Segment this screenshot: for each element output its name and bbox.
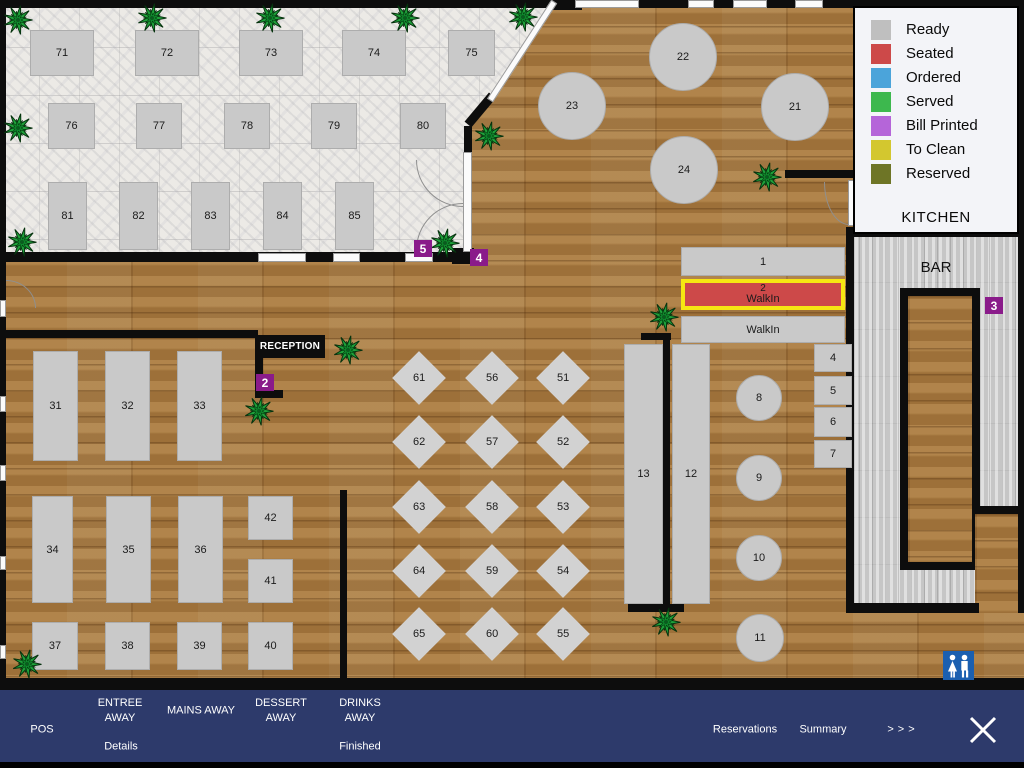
legend-swatch [871, 140, 891, 160]
table-82[interactable]: 82 [119, 182, 158, 250]
table-21[interactable]: 21 [761, 73, 829, 141]
table-53[interactable]: 53 [536, 480, 590, 534]
plant-icon [752, 162, 782, 192]
table-39[interactable]: 39 [177, 622, 222, 670]
table-79[interactable]: 79 [311, 103, 357, 149]
table-57[interactable]: 57 [465, 415, 519, 469]
table-6[interactable]: 6 [814, 407, 852, 437]
legend-item: Seated [871, 42, 1017, 65]
pos-floorplan-screen: BAR RECEPTION 71727374757677787980818283… [0, 0, 1024, 768]
table-52[interactable]: 52 [536, 415, 590, 469]
close-icon [966, 713, 1000, 747]
table-24[interactable]: 24 [650, 136, 718, 204]
table-41[interactable]: 41 [248, 559, 293, 603]
plant-icon [390, 3, 420, 33]
mains-away-button[interactable]: MAINS AWAY [167, 704, 235, 719]
table-71[interactable]: 71 [30, 30, 94, 76]
table-78[interactable]: 78 [224, 103, 270, 149]
table-62[interactable]: 62 [392, 415, 446, 469]
legend-label: Ordered [906, 69, 961, 86]
legend-swatch [871, 164, 891, 184]
plant-icon [474, 121, 504, 151]
legend-label: Seated [906, 45, 954, 62]
table-42[interactable]: 42 [248, 496, 293, 540]
plant-icon [651, 607, 681, 637]
table-13[interactable]: 13 [624, 344, 663, 604]
table-32[interactable]: 32 [105, 351, 150, 461]
table-33[interactable]: 33 [177, 351, 222, 461]
door-marker-5: 5 [414, 240, 432, 257]
table-76[interactable]: 76 [48, 103, 95, 149]
table-72[interactable]: 72 [135, 30, 199, 76]
table-31[interactable]: 31 [33, 351, 78, 461]
table-40[interactable]: 40 [248, 622, 293, 670]
table-74[interactable]: 74 [342, 30, 406, 76]
table-83[interactable]: 83 [191, 182, 230, 250]
table-1[interactable]: 1 [681, 247, 845, 276]
table-5[interactable]: 5 [814, 376, 852, 405]
legend-item: Reserved [871, 162, 1017, 185]
finished-button[interactable]: Finished [339, 740, 381, 755]
plant-icon [3, 113, 33, 143]
table-73[interactable]: 73 [239, 30, 303, 76]
legend-item: Ready [871, 18, 1017, 41]
plant-icon [508, 2, 538, 32]
table-38[interactable]: 38 [105, 622, 150, 670]
door-marker-4: 4 [470, 249, 488, 266]
table-60[interactable]: 60 [465, 607, 519, 661]
table-walkin[interactable]: WalkIn [681, 316, 845, 343]
table-7[interactable]: 7 [814, 440, 852, 468]
close-button[interactable] [966, 713, 1000, 747]
plant-icon [255, 3, 285, 33]
table-59[interactable]: 59 [465, 544, 519, 598]
legend-swatch [871, 68, 891, 88]
kitchen-label: KITCHEN [855, 209, 1017, 226]
table-85[interactable]: 85 [335, 182, 374, 250]
legend-label: Served [906, 93, 954, 110]
legend-swatch [871, 116, 891, 136]
table-81[interactable]: 81 [48, 182, 87, 250]
table-54[interactable]: 54 [536, 544, 590, 598]
door-marker-2: 2 [256, 374, 274, 391]
legend-item: Ordered [871, 66, 1017, 89]
legend-label: Bill Printed [906, 117, 978, 134]
table-4[interactable]: 4 [814, 344, 852, 372]
table-80[interactable]: 80 [400, 103, 446, 149]
legend-label: Reserved [906, 165, 970, 182]
table-77[interactable]: 77 [136, 103, 182, 149]
table-23[interactable]: 23 [538, 72, 606, 140]
legend-label: Ready [906, 21, 949, 38]
pos-button[interactable]: POS [30, 723, 53, 738]
legend-swatch [871, 44, 891, 64]
table-51[interactable]: 51 [536, 351, 590, 405]
plant-icon [3, 5, 33, 35]
table-58[interactable]: 58 [465, 480, 519, 534]
table-56[interactable]: 56 [465, 351, 519, 405]
table-22[interactable]: 22 [649, 23, 717, 91]
legend-label: To Clean [906, 141, 965, 158]
table-9[interactable]: 9 [736, 455, 782, 501]
table-55[interactable]: 55 [536, 607, 590, 661]
table-84[interactable]: 84 [263, 182, 302, 250]
table-35[interactable]: 35 [106, 496, 151, 603]
table-75[interactable]: 75 [448, 30, 495, 76]
plant-icon [137, 3, 167, 33]
legend-swatch [871, 20, 891, 40]
table-63[interactable]: 63 [392, 480, 446, 534]
drinks-away-button[interactable]: DRINKS AWAY [339, 696, 381, 726]
table-64[interactable]: 64 [392, 544, 446, 598]
plant-icon [430, 228, 460, 258]
dessert-away-button[interactable]: DESSERT AWAY [255, 696, 307, 726]
table-37[interactable]: 37 [32, 622, 78, 670]
table-12[interactable]: 12 [672, 344, 710, 604]
bottom-toolbar: POS ENTREE AWAY Details MAINS AWAY DESSE… [0, 690, 1024, 762]
details-button[interactable]: Details [104, 740, 138, 755]
entree-away-button[interactable]: ENTREE AWAY [98, 696, 143, 726]
table-8[interactable]: 8 [736, 375, 782, 421]
legend-item: Bill Printed [871, 114, 1017, 137]
table-61[interactable]: 61 [392, 351, 446, 405]
legend-item: To Clean [871, 138, 1017, 161]
restroom-icon [943, 651, 974, 680]
status-legend: ReadySeatedOrderedServedBill PrintedTo C… [853, 6, 1019, 234]
reservations-button[interactable]: Reservations [713, 723, 777, 738]
legend-swatch [871, 92, 891, 112]
plant-icon [649, 302, 679, 332]
door-marker-3: 3 [985, 297, 1003, 314]
plant-icon [7, 227, 37, 257]
table-2[interactable]: 2WalkIn [681, 279, 845, 310]
plant-icon [333, 335, 363, 365]
summary-button[interactable]: Summary [799, 723, 846, 738]
legend-item: Served [871, 90, 1017, 113]
table-10[interactable]: 10 [736, 535, 782, 581]
more-pages-button[interactable]: >>> [887, 723, 918, 738]
table-34[interactable]: 34 [32, 496, 73, 603]
table-36[interactable]: 36 [178, 496, 223, 603]
plant-icon [244, 396, 274, 426]
table-11[interactable]: 11 [736, 614, 784, 662]
table-65[interactable]: 65 [392, 607, 446, 661]
